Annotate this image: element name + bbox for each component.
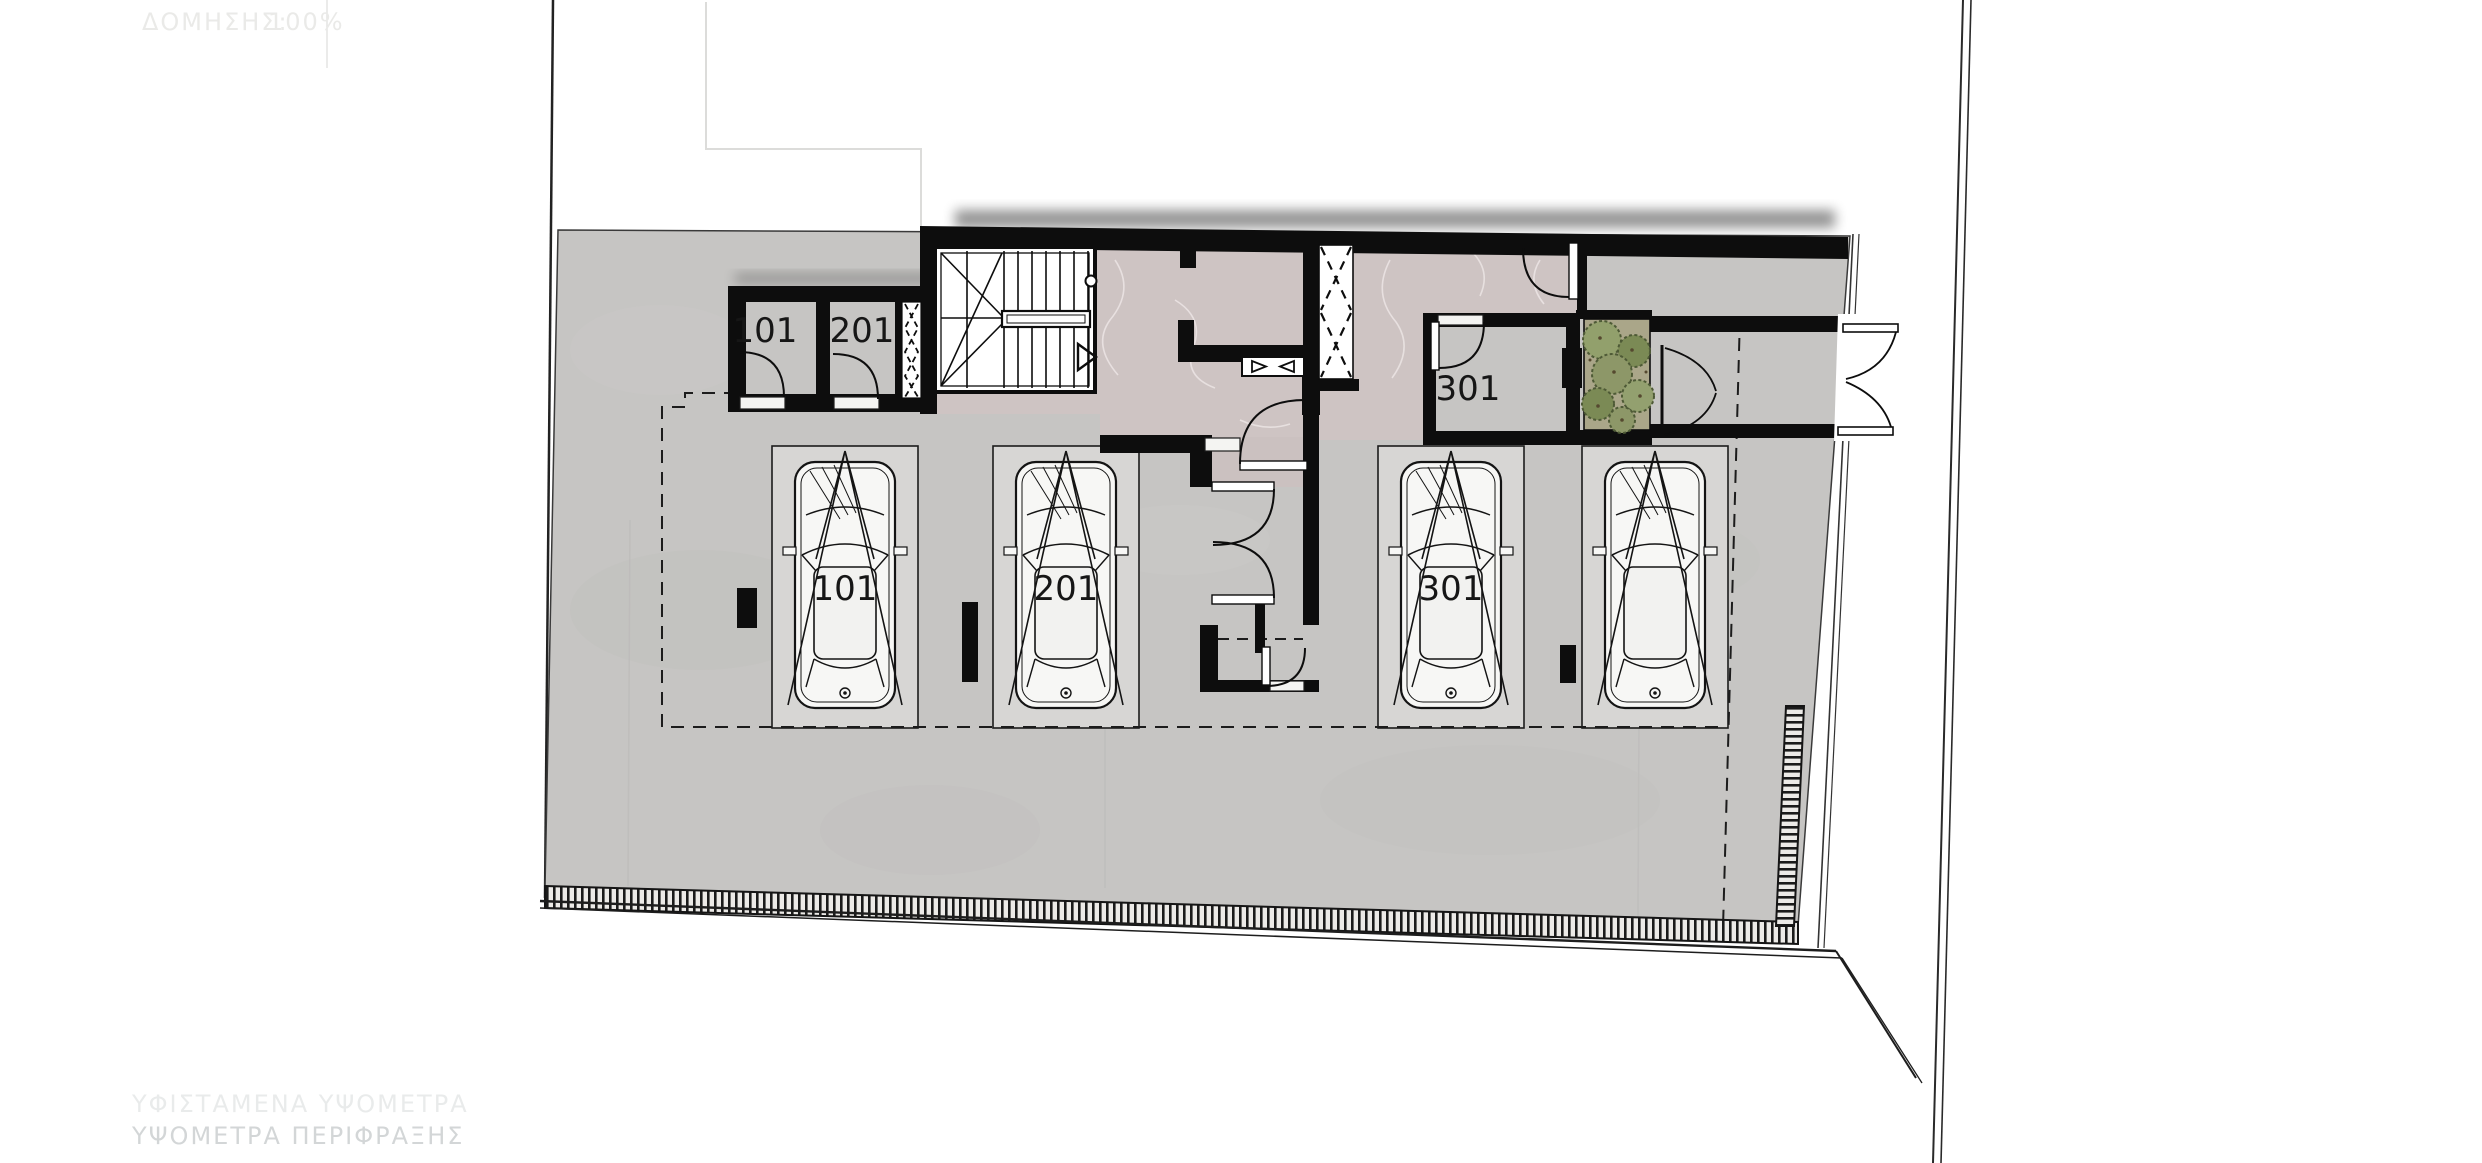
corridor-right-wall xyxy=(1303,415,1319,625)
neighbour-outlines xyxy=(327,0,921,228)
floor-plan-page: ΔΟΜΗΣΗΣ: 100% xyxy=(0,0,2482,1163)
planter xyxy=(1582,319,1654,433)
storage-201-label: 201 xyxy=(830,311,895,351)
elevator-jamb xyxy=(1303,240,1320,348)
room301-bottom-wall xyxy=(1423,431,1580,445)
coeff-label: ΔΟΜΗΣΗΣ: xyxy=(142,8,289,36)
coeff-value: 100% xyxy=(268,8,345,36)
faint-legend-bottom: ΥΦΙΣΤΑΜΕΝΑ ΥΨΟΜΕΤΡΑ ΥΨΟΜΕΤΡΑ ΠΕΡΙΦΡΑΞΗΣ xyxy=(131,1090,469,1150)
floor-plan-drawing: ΔΟΜΗΣΗΣ: 100% xyxy=(0,0,2482,1163)
parking-301-label: 301 xyxy=(1419,569,1484,609)
road-line-a xyxy=(1933,0,1963,1163)
parking-201-label: 201 xyxy=(1034,569,1099,609)
storage-101-label: 101 xyxy=(733,311,798,351)
staircase xyxy=(935,247,1097,392)
lobby-vent-element xyxy=(1242,357,1304,376)
storage-301-label: 301 xyxy=(1436,369,1501,409)
outer-boundary-corner-a xyxy=(1836,951,1916,1078)
column xyxy=(737,588,757,628)
road-line-b xyxy=(1941,0,1971,1163)
parking-101-label: 101 xyxy=(813,569,878,609)
faint-legend-top: ΔΟΜΗΣΗΣ: 100% xyxy=(142,8,345,36)
car-4 xyxy=(1593,451,1717,708)
storage-shaft-strip xyxy=(902,302,921,398)
room301-pier xyxy=(1562,348,1582,388)
legend-existing-elevations: ΥΦΙΣΤΑΜΕΝΑ ΥΨΟΜΕΤΡΑ xyxy=(131,1090,469,1118)
elevator-shaft xyxy=(1319,245,1353,379)
column xyxy=(1560,645,1576,683)
stair-rail xyxy=(1002,311,1090,327)
outer-boundary-corner-b xyxy=(1842,958,1922,1083)
storage-divider-wall xyxy=(816,296,830,404)
corridor-top-wall xyxy=(1100,435,1205,453)
column xyxy=(962,602,978,682)
stair-start-marker xyxy=(1086,276,1097,287)
legend-fence-elevations: ΥΨΟΜΕΤΡΑ ΠΕΡΙΦΡΑΞΗΣ xyxy=(131,1122,464,1150)
